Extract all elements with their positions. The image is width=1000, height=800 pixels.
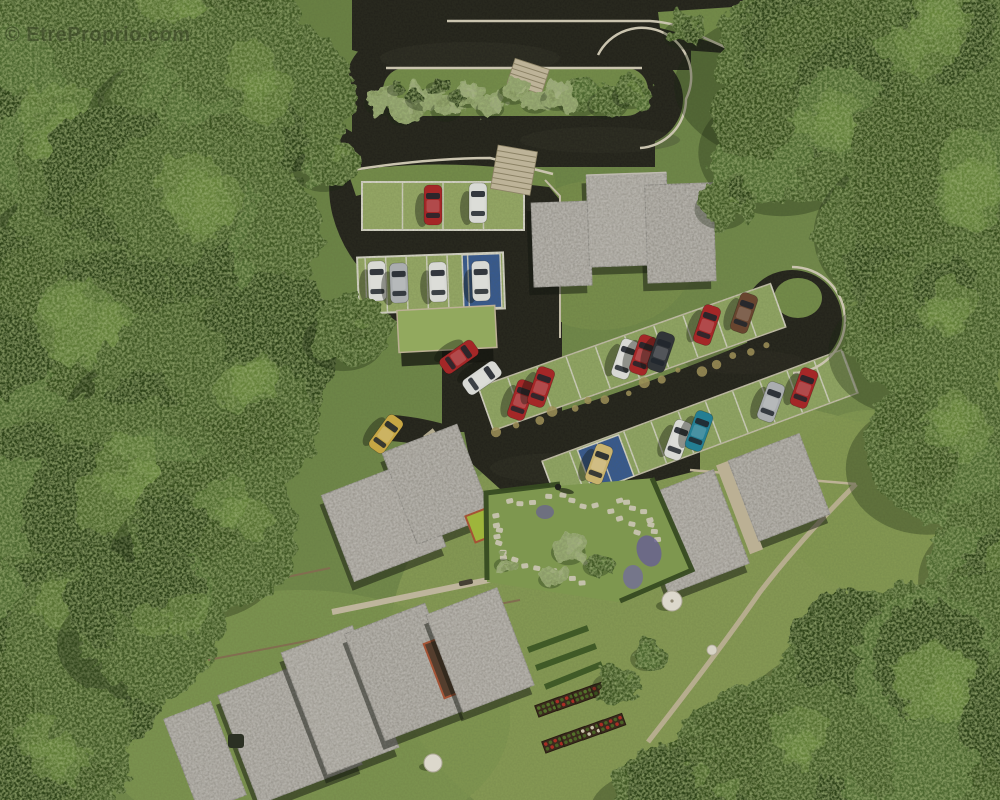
aerial-site-render: © EtreProprio.com: [0, 0, 1000, 800]
watermark: © EtreProprio.com: [5, 24, 191, 47]
vignette: [0, 0, 1000, 800]
site-plan-svg: [0, 0, 1000, 800]
